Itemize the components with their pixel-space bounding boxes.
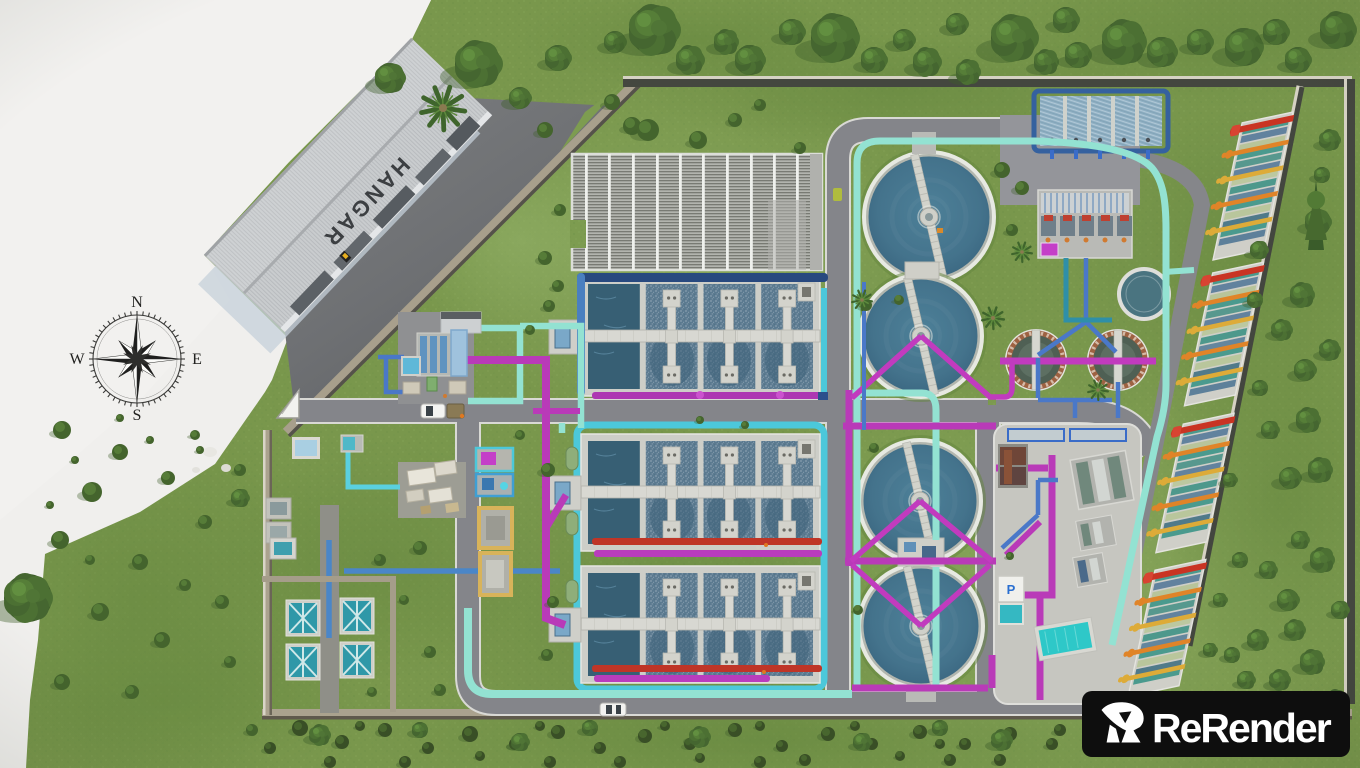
svg-text:W: W: [69, 351, 85, 368]
svg-text:S: S: [133, 407, 142, 424]
svg-text:N: N: [131, 294, 143, 311]
svg-text:E: E: [192, 351, 202, 368]
svg-text:ReRender: ReRender: [1152, 705, 1332, 751]
